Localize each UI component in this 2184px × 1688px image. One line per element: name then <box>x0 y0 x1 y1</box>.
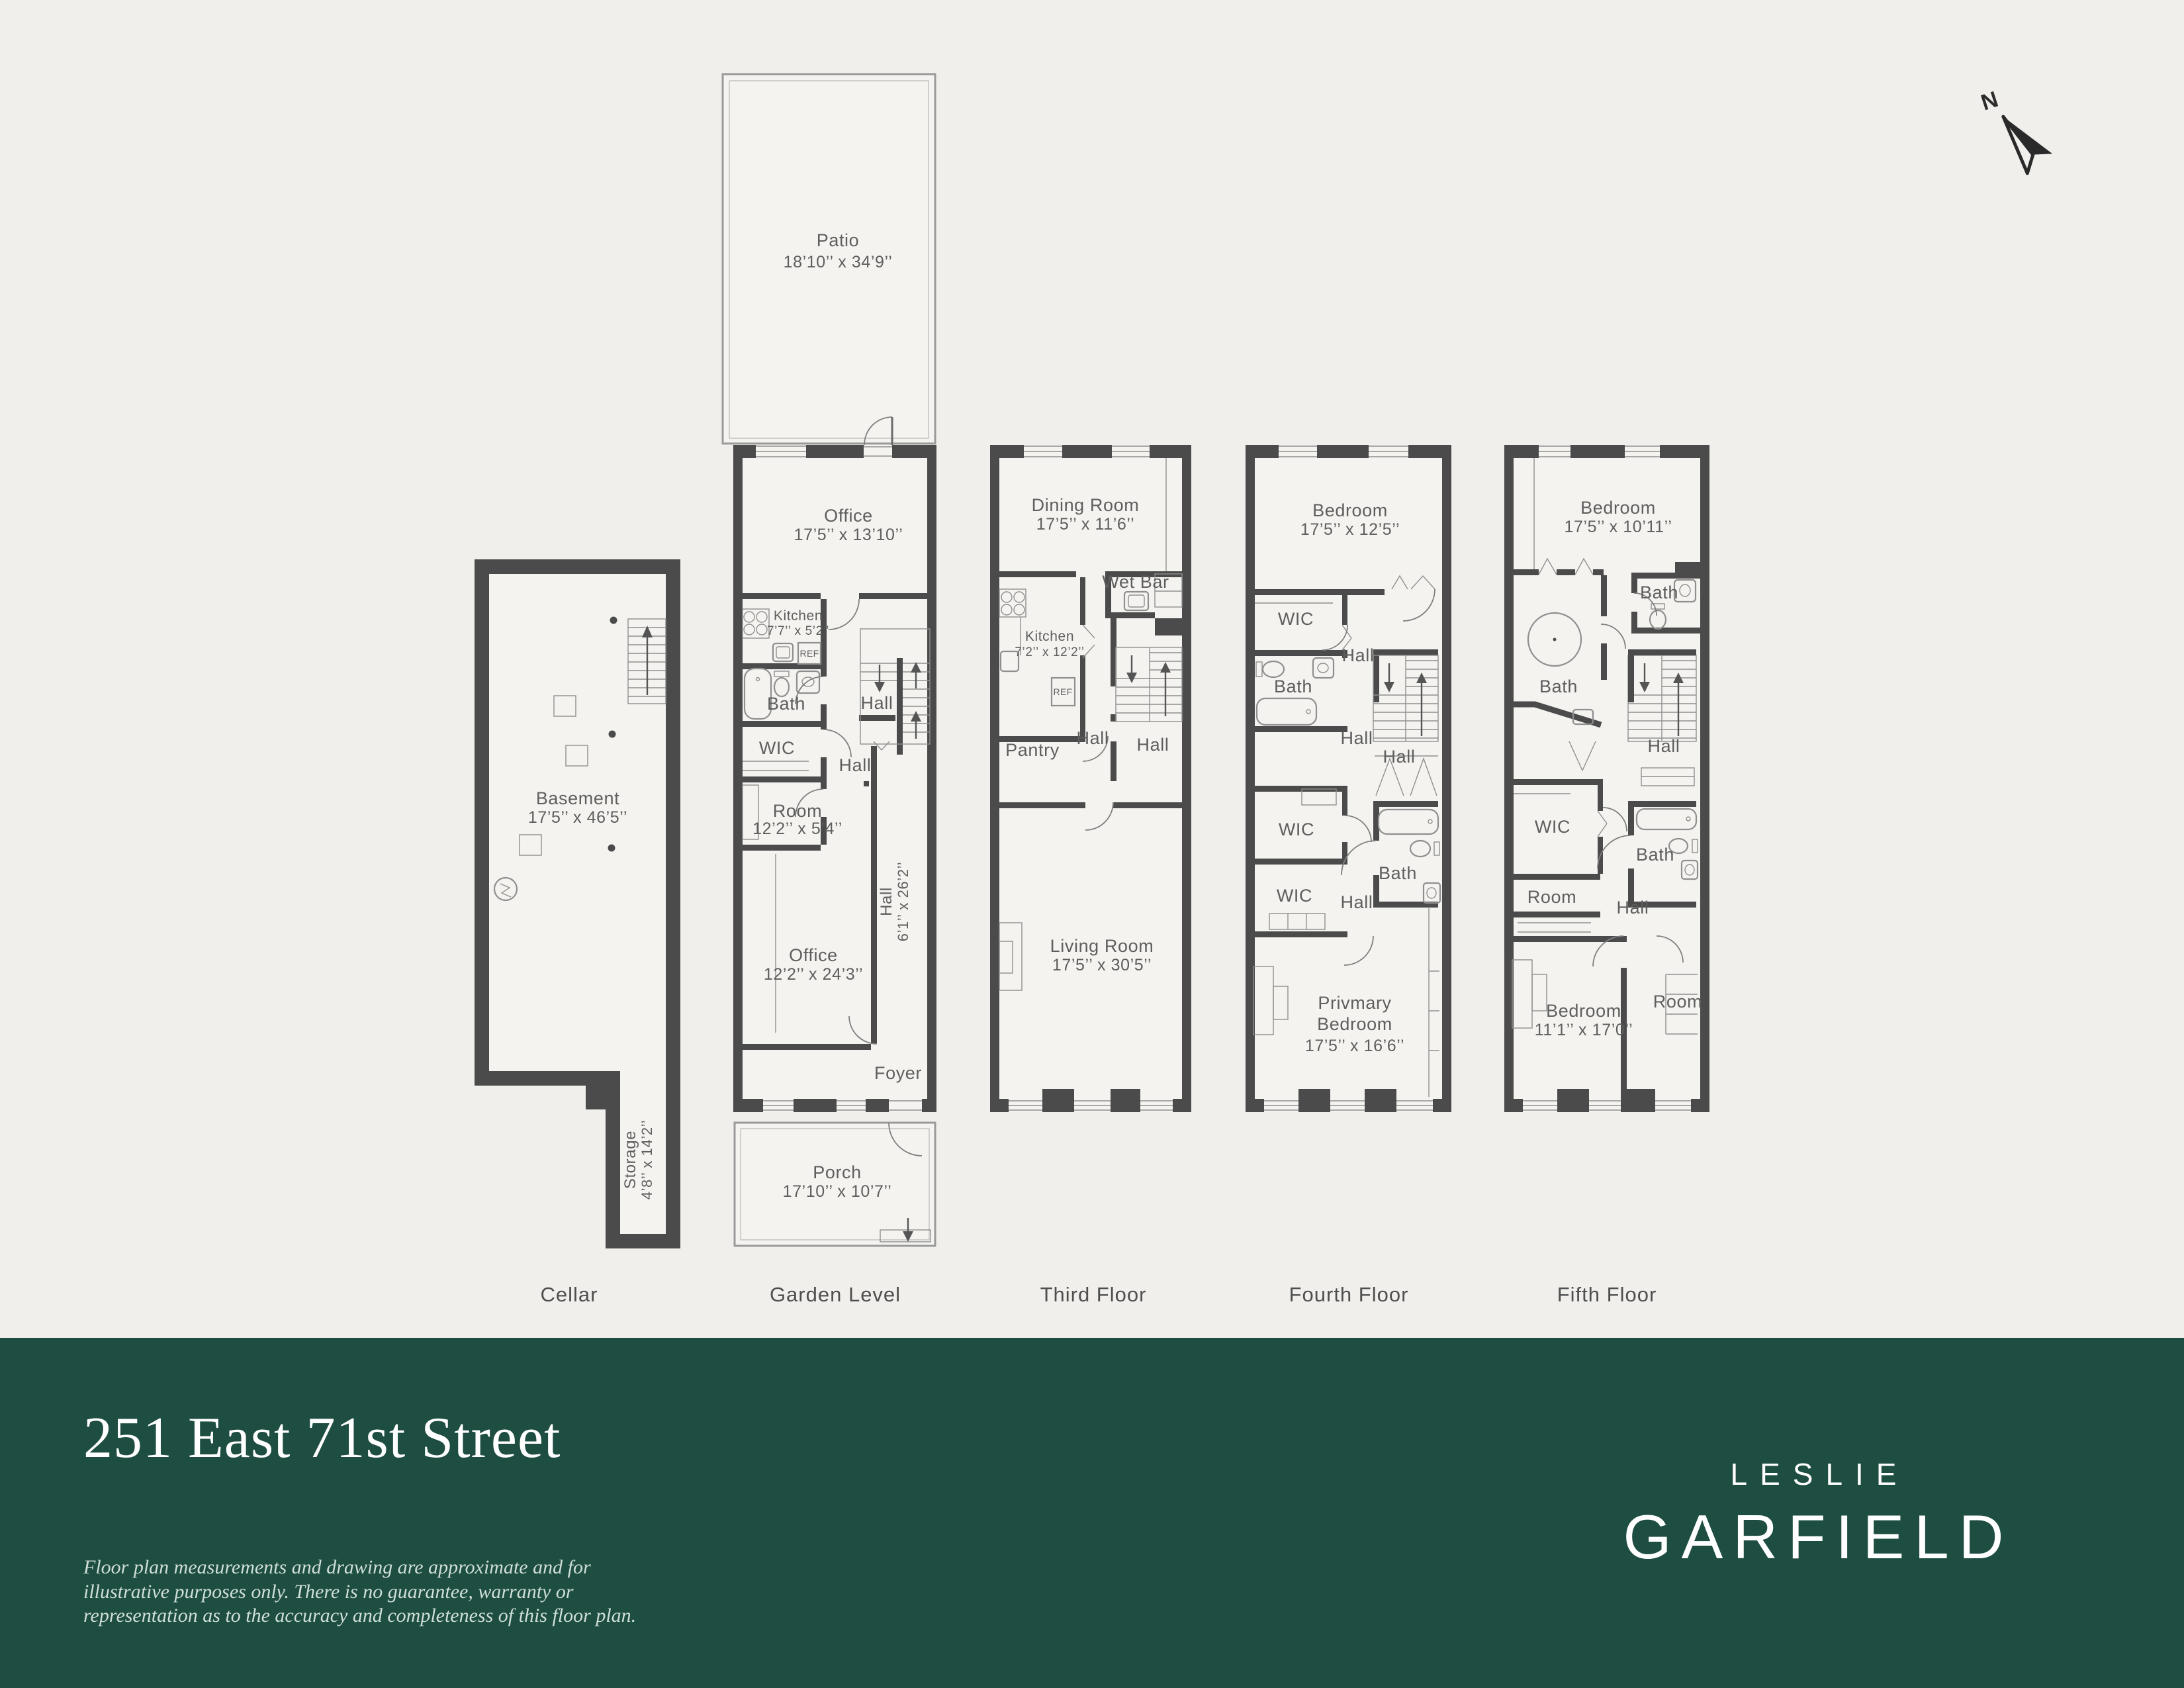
fourth-hall-mid-label: Hall <box>1341 728 1373 748</box>
third-kitchen-label: Kitchen <box>1025 629 1074 644</box>
garden-hall-corridor-dims: 6’1’’ x 26’2’’ <box>895 862 911 942</box>
pantry-label: Pantry <box>1005 740 1060 760</box>
disclaimer-text: Floor plan measurements and drawing are … <box>83 1556 636 1628</box>
garden-wic-label: WIC <box>759 738 795 758</box>
fourth-bedroom-dims: 17’5’’ x 12’5’’ <box>1300 520 1400 539</box>
dining-room-dims: 17’5’’ x 11’6’’ <box>1036 515 1134 534</box>
basement-dims: 17’5’’ x 46’5’’ <box>528 808 627 827</box>
fifth-bath-mid-label: Bath <box>1636 845 1674 865</box>
garden-ref-label: REF <box>800 648 819 659</box>
north-arrow-icon: N <box>1952 70 2085 202</box>
third-hall-left-label: Hall <box>1077 728 1109 748</box>
primary-bedroom-dims: 17’5’’ x 16’6’’ <box>1305 1037 1404 1055</box>
fifth-bedroom-bottom-label: Bedroom <box>1546 1001 1621 1021</box>
fourth-hall-top-label: Hall <box>1342 645 1375 665</box>
garden-room-dims: 12’2’’ x 5’4’’ <box>752 820 842 838</box>
fifth-room-left-label: Room <box>1527 887 1576 907</box>
wet-bar-label: Wet Bar <box>1102 572 1169 592</box>
garden-hall-mid-label: Hall <box>839 755 872 775</box>
fourth-hall-stairs-label: Hall <box>1383 747 1416 767</box>
compass-n-label: N <box>1978 87 2002 116</box>
garden-hall-upper-label: Hall <box>861 693 893 713</box>
patio-dims: 18’10’’ x 34’9’’ <box>784 253 893 271</box>
fifth-floor-plan: Bedroom 17’5’’ x 10’11’’ Bath Bath Hall … <box>1504 445 1709 1125</box>
living-room-dims: 17’5’’ x 30’5’’ <box>1052 956 1152 974</box>
fifth-bath-top-label: Bath <box>1640 583 1678 602</box>
fifth-bedroom-top-dims: 17’5’’ x 10’11’’ <box>1565 518 1672 536</box>
fifth-bedroom-top-label: Bedroom <box>1580 498 1656 518</box>
garden-kitchen-label: Kitchen <box>774 608 823 624</box>
fourth-bedroom-label: Bedroom <box>1312 500 1388 520</box>
brand-logo-line-1: LESLIE <box>1613 1456 2013 1492</box>
third-ref-label: REF <box>1054 686 1073 697</box>
fifth-hall-stairs-label: Hall <box>1648 736 1680 756</box>
fourth-floor-plan: Bedroom 17’5’’ x 12’5’’ WIC Hall Bath Ha… <box>1246 445 1451 1125</box>
brand-logo-line-2: GARFIELD <box>1613 1501 2013 1573</box>
third-hall-right-label: Hall <box>1137 735 1169 755</box>
patio-plan: Patio 18’10’’ x 34’9’’ <box>721 73 936 445</box>
disclaimer-line-2: illustrative purposes only. There is no … <box>83 1580 636 1605</box>
garden-level-plan: Office 17’5’’ x 13’10’’ Kitchen 7’7’’ x … <box>733 445 936 1125</box>
brand-logo: LESLIE GARFIELD <box>1613 1456 2013 1573</box>
garden-foyer-label: Foyer <box>874 1063 922 1083</box>
fifth-room-right-label: Room <box>1653 992 1702 1011</box>
garden-hall-corridor-label: Hall <box>878 887 895 916</box>
living-room-label: Living Room <box>1050 936 1154 956</box>
cellar-plan: Basement 17’5’’ x 46’5’’ Storage 4’8’’ x… <box>475 559 680 1251</box>
property-address-title: 251 East 71st Street <box>83 1405 561 1472</box>
porch-dims: 17’10’’ x 10’7’’ <box>783 1182 892 1201</box>
disclaimer-line-3: representation as to the accuracy and co… <box>83 1604 636 1628</box>
floor-label-third: Third Floor <box>1040 1283 1147 1307</box>
storage-dims: 4’8’’ x 14’2’’ <box>639 1120 655 1200</box>
garden-kitchen-dims: 7’7’’ x 5’2’’ <box>767 624 829 638</box>
disclaimer-line-1: Floor plan measurements and drawing are … <box>83 1556 636 1580</box>
porch-plan: Porch 17’10’’ x 10’7’’ <box>733 1121 936 1248</box>
fifth-wic-label: WIC <box>1535 817 1570 837</box>
porch-label: Porch <box>813 1162 862 1182</box>
garden-office-top-label: Office <box>824 506 873 526</box>
floor-label-fifth: Fifth Floor <box>1557 1283 1657 1307</box>
garden-office-top-dims: 17’5’’ x 13’10’’ <box>794 526 903 544</box>
garden-room-label: Room <box>773 801 822 821</box>
garden-office-bottom-label: Office <box>789 945 838 965</box>
primary-bedroom-label2: Bedroom <box>1317 1014 1392 1034</box>
fourth-bath-low-label: Bath <box>1379 863 1417 883</box>
fourth-wic-mid-label: WIC <box>1279 820 1314 839</box>
fourth-wic-top-label: WIC <box>1278 609 1314 629</box>
fifth-bath-left-label: Bath <box>1539 677 1578 696</box>
fifth-hall-mid-label: Hall <box>1617 898 1649 917</box>
fifth-bedroom-bottom-dims: 11’1’’ x 17’0’’ <box>1535 1021 1633 1039</box>
basement-label: Basement <box>536 788 619 808</box>
dining-room-label: Dining Room <box>1032 495 1140 515</box>
garden-office-bottom-dims: 12’2’’ x 24’3’’ <box>764 965 863 984</box>
fourth-hall-low-label: Hall <box>1341 892 1373 912</box>
primary-bedroom-label1: Privmary <box>1318 993 1391 1013</box>
patio-label: Patio <box>817 230 860 250</box>
floor-label-garden: Garden Level <box>770 1283 901 1307</box>
third-kitchen-dims: 7’2’’ x 12’2’’ <box>1015 645 1084 659</box>
third-floor-plan: Dining Room 17’5’’ x 11’6’’ Wet Bar Kitc… <box>990 445 1191 1125</box>
fourth-bath-top-label: Bath <box>1274 677 1312 696</box>
fourth-wic-low-label: WIC <box>1277 886 1312 906</box>
floor-label-fourth: Fourth Floor <box>1289 1283 1409 1307</box>
garden-bath-label: Bath <box>767 694 805 714</box>
storage-label: Storage <box>621 1131 639 1189</box>
floor-plan-sheet: N Basement 17’5’’ x <box>0 0 2184 1688</box>
floor-label-cellar: Cellar <box>541 1283 598 1307</box>
